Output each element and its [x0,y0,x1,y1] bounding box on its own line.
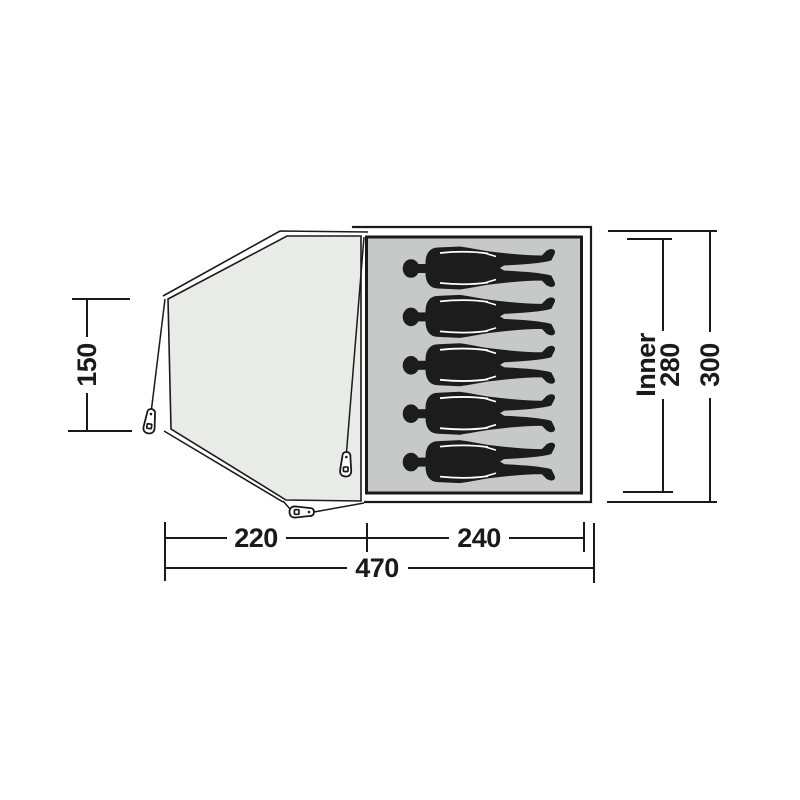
dim-label-150: 150 [72,343,102,387]
dimension-inner-depth: Inner 280 [623,239,685,492]
floorplan-svg: 150 Inner 280 300 220 240 470 [0,0,800,800]
dim-label-300: 300 [695,343,725,387]
dim-label-220: 220 [234,523,278,553]
guy-line-bottom-a [283,501,290,509]
dim-label-470: 470 [355,553,399,583]
guy-line-left [152,299,166,409]
dimension-left-height: 150 [68,299,132,431]
guy-line-bottom-b [314,503,364,512]
dimension-bottom-total: 470 [165,523,594,583]
zipper-pull-icon [340,452,352,477]
dim-label-280: 280 [655,343,685,387]
zipper-pull-icon [290,506,315,517]
zipper-pull-icon [143,408,157,434]
vestibule-area [168,236,361,501]
tent-floorplan-diagram: 150 Inner 280 300 220 240 470 [0,0,800,800]
dim-label-240: 240 [457,523,501,553]
